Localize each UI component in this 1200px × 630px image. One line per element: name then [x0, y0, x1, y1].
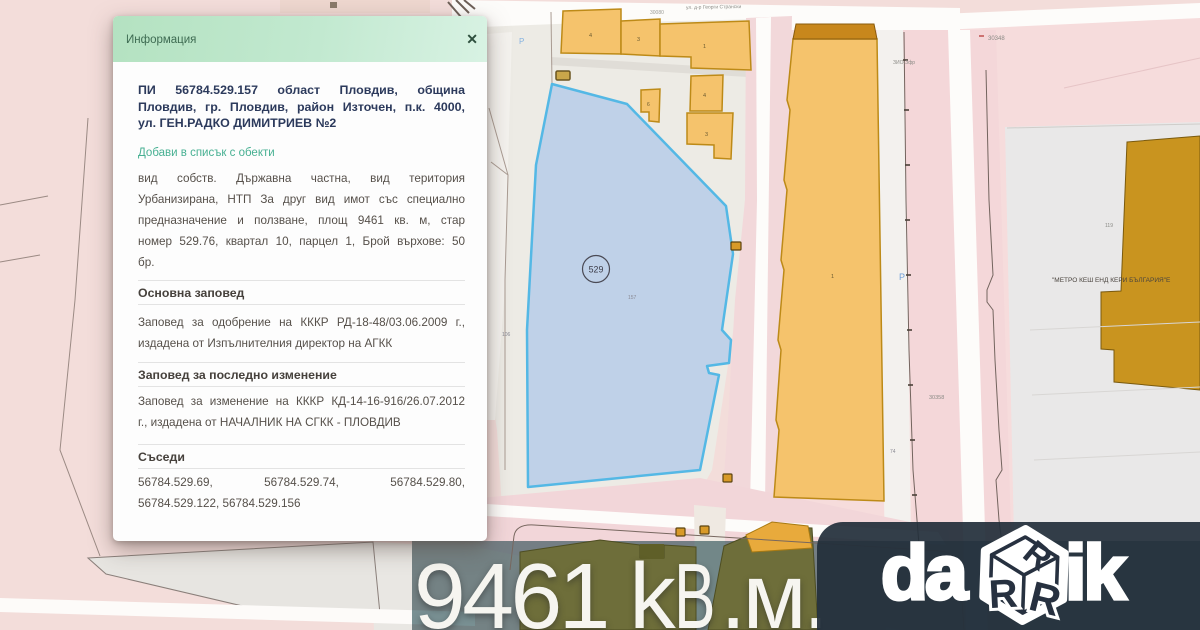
- svg-text:74: 74: [890, 449, 896, 455]
- svg-text:119: 119: [1105, 223, 1113, 229]
- svg-text:30348: 30348: [988, 36, 1005, 42]
- svg-text:"МЕТРО КЕШ ЕНД КЕРИ БЪЛГАРИЯ"Е: "МЕТРО КЕШ ЕНД КЕРИ БЪЛГАРИЯ"Е: [1052, 277, 1171, 284]
- svg-text:ik: ik: [1065, 530, 1126, 616]
- svg-text:3: 3: [705, 132, 708, 138]
- svg-text:da: da: [881, 530, 969, 616]
- svg-text:P: P: [519, 37, 524, 46]
- svg-text:R: R: [988, 572, 1019, 617]
- svg-text:6: 6: [647, 102, 650, 108]
- svg-text:157: 157: [628, 295, 637, 301]
- svg-text:106: 106: [502, 332, 511, 338]
- svg-text:30358: 30358: [929, 395, 944, 401]
- svg-text:1: 1: [831, 274, 834, 280]
- svg-text:4: 4: [703, 93, 706, 99]
- svg-text:1: 1: [703, 44, 706, 50]
- svg-text:3: 3: [637, 37, 640, 43]
- svg-text:4: 4: [589, 33, 592, 39]
- svg-text:P: P: [899, 272, 905, 282]
- svg-text:30080: 30080: [650, 10, 664, 16]
- svg-text:ЗИО-Зфр: ЗИО-Зфр: [893, 60, 915, 66]
- svg-text:ул. д-р Георги Странски: ул. д-р Георги Странски: [686, 4, 742, 11]
- svg-text:529: 529: [589, 265, 604, 275]
